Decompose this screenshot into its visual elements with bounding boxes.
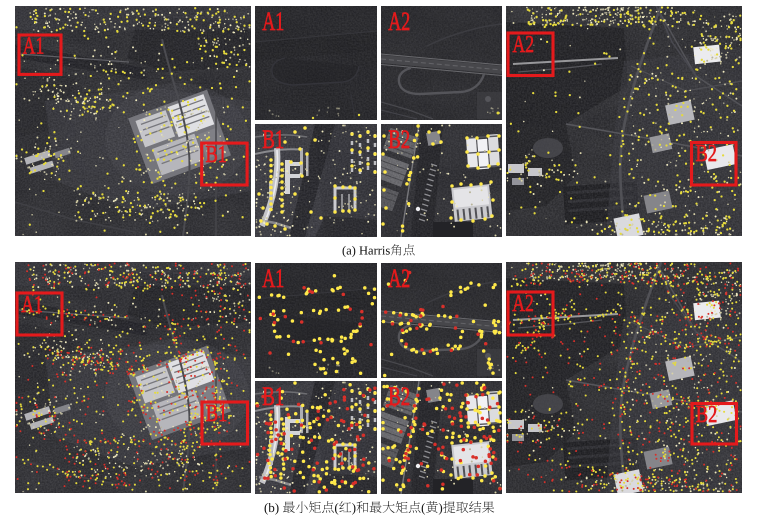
svg-text:B1: B1 — [262, 382, 284, 411]
svg-text:B2: B2 — [388, 125, 410, 154]
svg-text:B1: B1 — [262, 125, 284, 154]
svg-text:A2: A2 — [388, 264, 410, 293]
svg-text:A1: A1 — [23, 34, 45, 60]
svg-text:A1: A1 — [21, 292, 43, 318]
svg-text:B2: B2 — [388, 382, 410, 411]
svg-text:B2: B2 — [696, 402, 718, 428]
svg-text:B1: B1 — [206, 401, 228, 427]
svg-text:A2: A2 — [512, 291, 534, 317]
svg-text:A2: A2 — [388, 7, 410, 36]
svg-text:B2: B2 — [696, 141, 718, 167]
svg-text:A2: A2 — [513, 32, 535, 58]
svg-text:A1: A1 — [262, 264, 284, 293]
svg-text:A1: A1 — [262, 7, 284, 36]
svg-text:B1: B1 — [206, 142, 228, 168]
